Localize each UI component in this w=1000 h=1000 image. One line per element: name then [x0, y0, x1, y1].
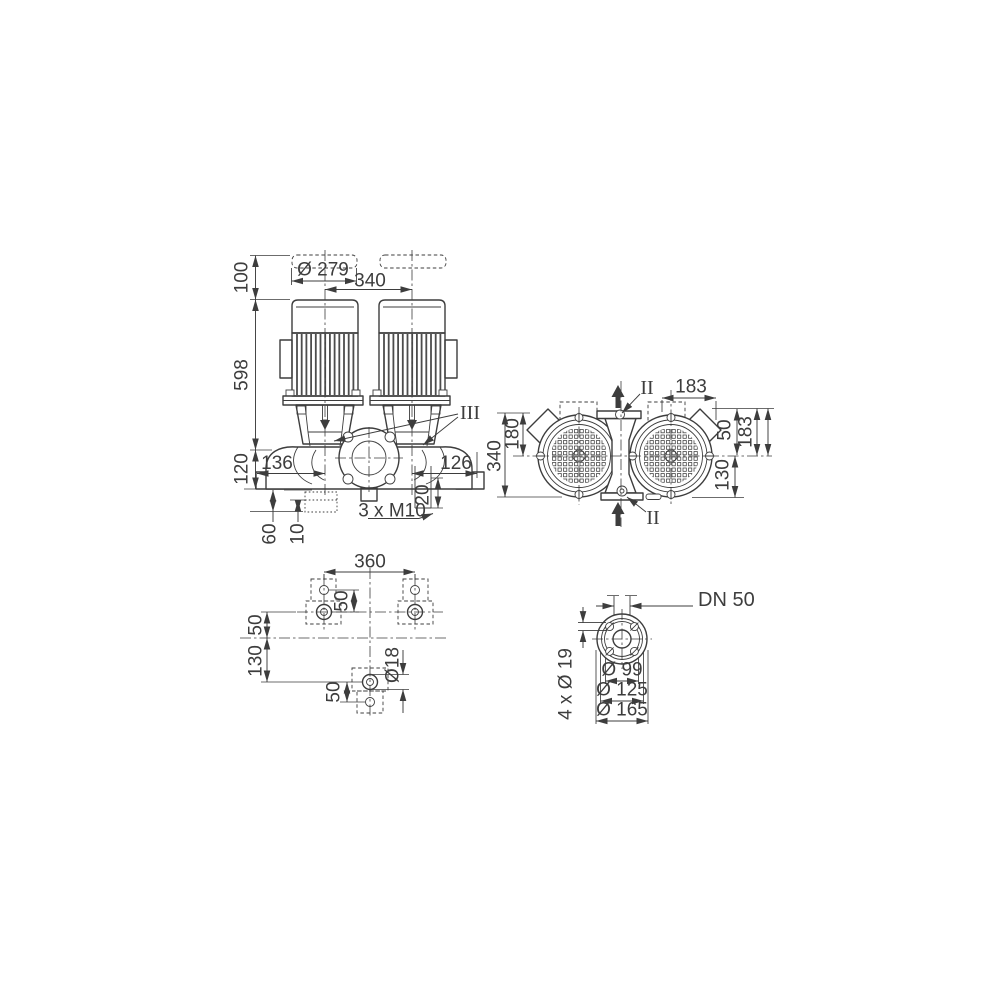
dim-label-foot-distance: 130 — [246, 645, 267, 677]
dimension-drawing-canvas: 100 598 120 Ø 279 340 136 126 60 10 20 3… — [0, 0, 1000, 1000]
flange-bolt-hole — [385, 432, 395, 442]
dim-label-foot-span: 360 — [354, 552, 386, 573]
dim-label-top-clearance: 100 — [232, 262, 253, 294]
dim-label-foot-height: 60 — [260, 523, 281, 544]
dim-label-pad-height: 10 — [288, 523, 309, 544]
dim-label-motor-spacing: 340 — [354, 271, 386, 292]
dim-label-axis-offset: 50 — [246, 614, 267, 635]
section-marker-bottom-label: II — [646, 507, 659, 529]
dim-label-right-offset: 126 — [440, 453, 472, 474]
paper-background — [0, 0, 1000, 1000]
dim-label-left-offset: 136 — [261, 453, 293, 474]
dim-label-unit-height: 598 — [232, 359, 253, 391]
dim-label-hole-diameter: Ø18 — [383, 647, 404, 683]
dim-label-outer-diameter: Ø 165 — [596, 700, 648, 721]
dim-label-pilot-diameter: Ø 99 — [601, 660, 642, 681]
dim-label-nominal: DN 50 — [698, 589, 755, 611]
dim-label-hole-pitch-top: 50 — [332, 590, 353, 611]
detail-marker-label: III — [460, 402, 480, 424]
dim-label-axis-depth: 180 — [503, 418, 524, 450]
dim-label-hole-pitch-bottom: 50 — [324, 681, 345, 702]
gauge-slot — [646, 494, 661, 500]
dim-label-bolt-circle: Ø 125 — [596, 680, 648, 701]
dim-label-flange-offset: 130 — [713, 459, 734, 491]
dim-label-motor-diameter: Ø 279 — [297, 260, 349, 281]
dim-label-box-span-right: 183 — [736, 416, 757, 448]
dim-label-port-offset: 50 — [715, 419, 736, 440]
suction-bolt — [617, 486, 627, 496]
section-marker-top-label: II — [640, 377, 653, 399]
dim-label-base-height: 120 — [232, 453, 253, 485]
flange-bolt-hole — [385, 474, 395, 484]
dim-label-bolt-holes: 4 x Ø 19 — [556, 648, 577, 720]
flange-bolt-hole — [343, 474, 353, 484]
dim-label-box-span-top: 183 — [675, 377, 707, 398]
